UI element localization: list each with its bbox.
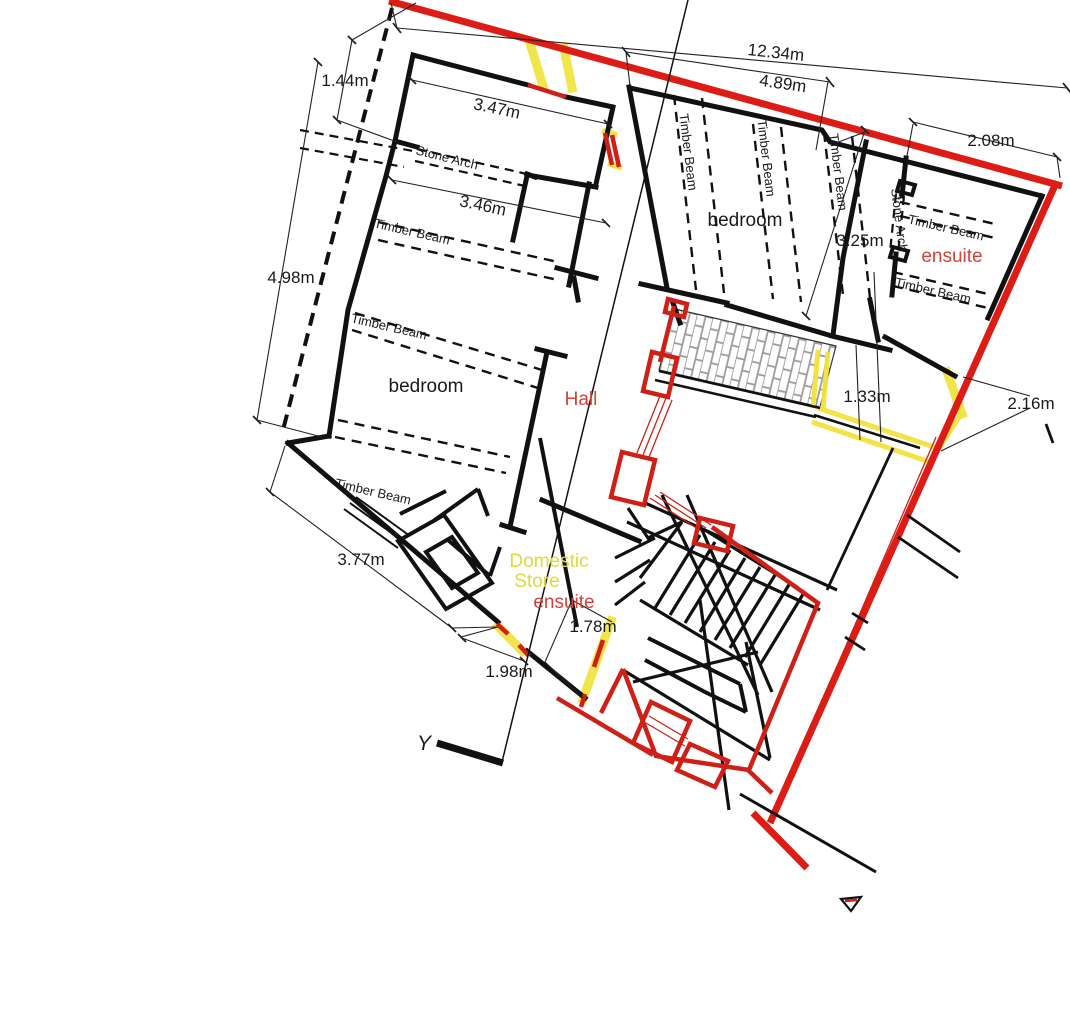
boundary-parallel-black	[740, 794, 876, 872]
timber-beam-label-1: Timber Beam	[373, 215, 452, 247]
dim-1-33: 1.33m	[843, 387, 890, 406]
dim-1-44: 1.44m	[321, 71, 368, 90]
dim-12-34: 12.34m	[747, 40, 805, 65]
timber-beam-label-3: Timber Beam	[334, 475, 413, 507]
arrow-marker	[841, 897, 861, 911]
floor-plan-canvas: 12.34m 4.89m 1.44m 3.47m 3.46m 4.98m 2.0…	[0, 0, 1070, 1010]
interior-walls-secondary	[398, 181, 915, 712]
dim-3-77: 3.77m	[337, 550, 384, 569]
dim-2-08: 2.08m	[967, 131, 1014, 150]
timber-beam-label-7: Timber Beam	[907, 211, 986, 243]
room-ensuite-lower: ensuite	[533, 592, 594, 613]
site-boundary-red	[389, 1, 1062, 868]
dim-1-78: 1.78m	[569, 617, 616, 636]
dim-4-98: 4.98m	[267, 268, 314, 287]
dim-4-89: 4.89m	[758, 71, 807, 96]
section-marker-bar	[437, 743, 503, 763]
room-bedroom-right: bedroom	[708, 210, 783, 231]
dim-1-98: 1.98m	[485, 662, 532, 681]
timber-beam-label-8: Timber Beam	[894, 274, 973, 306]
room-bedroom-left: bedroom	[389, 376, 464, 397]
timber-beam-label-2: Timber Beam	[350, 310, 429, 342]
section-marker-label: Y	[417, 732, 433, 755]
dim-3-47: 3.47m	[472, 94, 522, 122]
arrow-marker-red	[845, 900, 857, 901]
dim-3-25: 3.25m	[836, 231, 883, 250]
floor-plan-drawing: 12.34m 4.89m 1.44m 3.47m 3.46m 4.98m 2.0…	[0, 0, 1070, 1010]
dim-3-46: 3.46m	[458, 191, 508, 219]
room-domestic-store-line1: Domestic	[509, 551, 588, 572]
room-hall: Hall	[565, 389, 598, 410]
room-ensuite-right: ensuite	[921, 246, 982, 267]
dim-2-16: 2.16m	[1007, 394, 1054, 413]
room-domestic-store-line2: Store	[514, 571, 559, 592]
